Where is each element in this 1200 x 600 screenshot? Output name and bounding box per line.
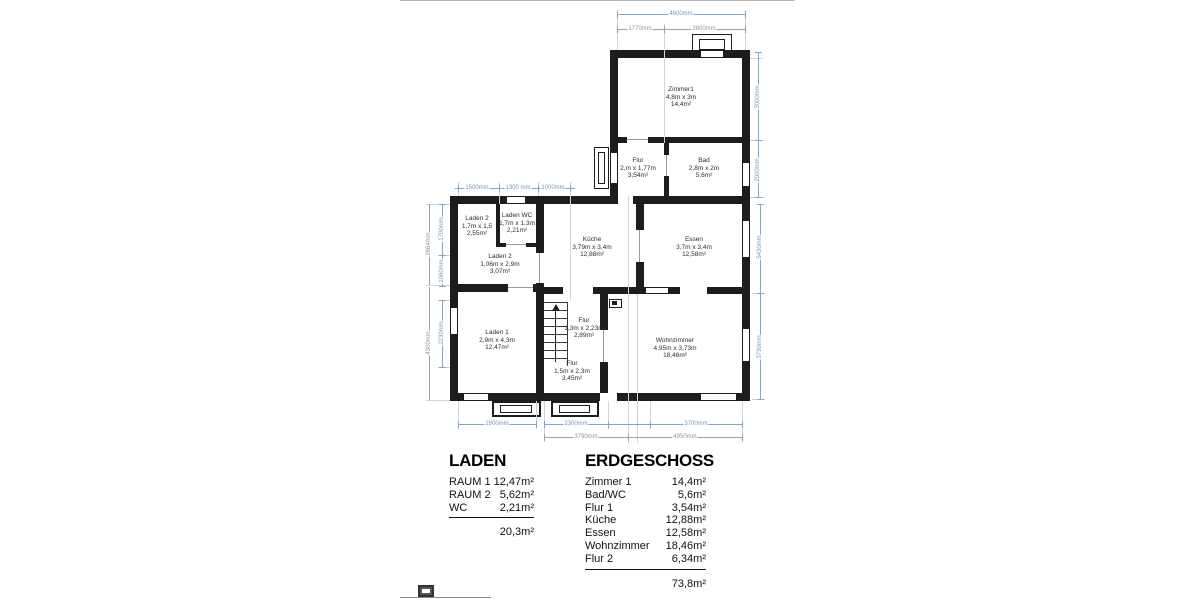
wall-segment <box>636 204 644 230</box>
row-label: WC <box>449 502 467 515</box>
room-area: 2,21m² <box>499 227 535 235</box>
laden-table: LADEN RAUM 1 12,47m² RAUM 2 5,62m² WC 2,… <box>449 451 534 538</box>
page-edge-line-bottom <box>400 597 491 598</box>
window-slot <box>742 162 750 187</box>
row-value: 12,47m² <box>494 476 534 489</box>
wall-segment <box>593 287 645 294</box>
dimension-tick <box>755 197 762 198</box>
dimension-tick <box>742 434 743 441</box>
room-label-essen: Essen 3,7m x 3,4m 12,58m² <box>676 236 712 259</box>
table-row: Essen 12,58m² <box>585 527 706 540</box>
dimension-label: 3730mm <box>757 334 763 359</box>
wall-segment <box>636 262 644 287</box>
window-slot <box>645 287 669 294</box>
row-label: Zimmer 1 <box>585 476 631 489</box>
fixture-symbol-inner <box>612 301 617 305</box>
door-opening-line <box>639 230 640 262</box>
room-name: Wohnzimmer <box>654 337 697 345</box>
row-value: 5,6m² <box>678 489 706 502</box>
row-value: 14,4m² <box>672 476 706 489</box>
erdgeschoss-total: 73,8m² <box>585 578 706 590</box>
room-name: Laden 1 <box>479 329 515 337</box>
wall-segment <box>742 204 750 220</box>
extension-line <box>637 294 638 443</box>
dimension-tick <box>757 293 764 294</box>
dimension-tick <box>617 11 618 18</box>
door-opening-line <box>539 253 540 283</box>
dimension-label: 2900mm <box>484 421 509 427</box>
wall-segment <box>617 393 700 401</box>
room-dims: 2,9m x 4,3m <box>479 336 515 344</box>
extension-line <box>628 196 629 443</box>
room-name: Laden 2 <box>480 253 519 261</box>
wall-segment <box>618 137 627 143</box>
extension-line <box>664 24 665 143</box>
room-area: 12,58m² <box>676 251 712 259</box>
dimension-tick <box>458 421 459 428</box>
wall-segment <box>489 393 600 401</box>
dimension-label: 2664mm <box>426 231 432 256</box>
table-row: RAUM 2 5,62m² <box>449 489 534 502</box>
wall-segment <box>664 176 669 196</box>
dimension-tick <box>617 26 618 33</box>
room-label-flur-top: Flur 2,m x 1,77m 3,54m² <box>620 157 656 180</box>
dimension-tick <box>755 52 762 53</box>
extension-line <box>426 400 450 401</box>
room-label-flur-mid: Flur 1,3m x 2,23m 2,89m² <box>564 317 603 340</box>
room-area: 12,47m² <box>479 344 515 352</box>
dimension-tick <box>608 421 609 428</box>
room-label-laden2-lower: Laden 2 1,06m x 2,9m 3,07m² <box>480 253 519 276</box>
door-opening-line <box>506 244 526 245</box>
floorplan-page: Zimmer1 4,8m x 3m 14,4m² Flur 2,m x 1,77… <box>0 0 1200 600</box>
dimension-tick <box>757 204 764 205</box>
room-area: 3,54m² <box>620 172 656 180</box>
dimension-tick <box>628 434 629 441</box>
table-total-rule <box>449 517 534 518</box>
wall-segment <box>496 243 506 247</box>
row-label: RAUM 1 <box>449 476 491 489</box>
erdgeschoss-table-title: ERDGESCHOSS <box>585 451 706 471</box>
room-dims: 2,m x 1,77m <box>620 164 656 172</box>
table-row: WC 2,21m² <box>449 502 534 515</box>
dimension-tick <box>439 367 446 368</box>
dimension-tick <box>650 421 651 428</box>
room-label-laden-wc: Laden WC 1,7m x 1,3m 2,21m² <box>499 212 535 235</box>
room-area: 5,6m² <box>689 172 719 180</box>
row-value: 6,34m² <box>672 553 706 566</box>
dimension-label: 4300mm <box>426 330 432 355</box>
dimension-tick <box>439 204 446 205</box>
door-opening-line <box>508 287 533 288</box>
room-name: Laden 2 <box>462 215 492 223</box>
dimension-tick <box>439 300 446 301</box>
wall-segment <box>526 243 536 247</box>
window-slot <box>742 220 750 258</box>
dimension-line <box>760 204 761 399</box>
room-label-laden1: Laden 1 2,9m x 4,3m 12,47m² <box>479 329 515 352</box>
wall-segment <box>450 393 463 401</box>
table-row: RAUM 1 12,47m² <box>449 476 534 489</box>
dimension-label: 1770mm <box>627 26 652 32</box>
row-label: Flur 1 <box>585 502 613 515</box>
dimension-tick <box>499 185 500 192</box>
wall-segment <box>526 196 612 204</box>
wall-segment <box>664 143 669 155</box>
window-slot <box>742 328 750 362</box>
dimension-tick <box>745 11 746 18</box>
row-value: 2,21m² <box>500 502 534 515</box>
wall-segment <box>707 287 750 294</box>
room-dims: 1,5m x 2,3m <box>554 367 590 375</box>
row-label: Bad/WC <box>585 489 626 502</box>
dimension-tick <box>544 434 545 441</box>
table-row: Küche 12,88m² <box>585 514 706 527</box>
window-slot <box>506 196 526 204</box>
erdgeschoss-table: ERDGESCHOSS Zimmer 1 14,4m² Bad/WC 5,6m²… <box>585 451 706 590</box>
wall-segment <box>450 335 458 401</box>
room-label-bad: Bad 2,8m x 2m 5,6m² <box>689 157 719 180</box>
room-name: Bad <box>689 157 719 165</box>
row-value: 12,88m² <box>666 514 706 527</box>
laden-table-title: LADEN <box>449 451 534 471</box>
dimension-tick <box>458 185 459 192</box>
room-dims: 3,79m x 3,4m <box>572 243 611 251</box>
dimension-label: 1000mm <box>540 185 565 191</box>
wall-segment <box>536 283 544 393</box>
extension-line <box>426 285 450 286</box>
window-slot <box>610 152 618 184</box>
door-symbol-inner <box>500 405 532 413</box>
row-value: 5,62m² <box>500 489 534 502</box>
extension-line <box>570 182 571 300</box>
room-name: Laden WC <box>499 212 535 220</box>
row-value: 18,46m² <box>666 540 706 553</box>
room-name: Zimmer1 <box>666 86 696 94</box>
table-row: Flur 2 6,34m² <box>585 553 706 566</box>
dimension-label: 1300 mm <box>504 185 531 191</box>
room-name: Essen <box>676 236 712 244</box>
dimension-tick <box>742 421 743 428</box>
dimension-tick <box>439 255 446 256</box>
room-area: 2,89m² <box>564 332 603 340</box>
room-dims: 4,95m x 3,73m <box>654 344 697 352</box>
room-label-flur-bottom: Flur 1,5m x 2,3m 3,45m² <box>554 360 590 383</box>
dimension-label: 1500mm <box>464 185 489 191</box>
dimension-label: 3790mm <box>573 434 598 440</box>
room-label-laden2-top: Laden 2 1,7m x 1,5 2,55m² <box>462 215 492 238</box>
window-slot <box>700 50 724 58</box>
room-dims: 1,3m x 2,23m <box>564 324 603 332</box>
room-dims: 2,8m x 2m <box>689 164 719 172</box>
dimension-label: 3700mm <box>683 421 708 427</box>
door-opening-line <box>666 155 667 176</box>
laden-total: 20,3m² <box>449 526 534 538</box>
wall-segment <box>450 196 506 204</box>
wall-segment <box>648 137 742 143</box>
room-area: 12,88m² <box>572 251 611 259</box>
dimension-label: 1060mm <box>439 258 445 283</box>
dimension-label: 2800mm <box>691 26 716 32</box>
row-label: Flur 2 <box>585 553 613 566</box>
door-symbol-inner <box>559 405 590 413</box>
room-area: 18,46m² <box>654 352 697 360</box>
room-label-wohnzimmer: Wohnzimmer 4,95m x 3,73m 18,46m² <box>654 337 697 360</box>
window-symbol-inner <box>598 152 605 184</box>
table-row: Bad/WC 5,6m² <box>585 489 706 502</box>
room-label-zimmer1: Zimmer1 4,8m x 3m 14,4m² <box>666 86 696 109</box>
dimension-label: 4950mm <box>672 434 697 440</box>
stairs-direction-arrow <box>555 310 556 362</box>
dimension-label: 5430mm <box>757 234 763 259</box>
dimension-tick <box>745 26 746 33</box>
room-name: Flur <box>620 157 656 165</box>
table-row: Wohnzimmer 18,46m² <box>585 540 706 553</box>
room-area: 3,45m² <box>554 375 590 383</box>
dimension-label: 2230mm <box>439 320 445 345</box>
dimension-tick <box>439 286 446 287</box>
dimension-label: 3000mm <box>755 84 761 109</box>
room-dims: 1,7m x 1,3m <box>499 219 535 227</box>
wall-segment <box>610 50 750 58</box>
window-slot <box>450 307 458 335</box>
dimension-tick <box>755 140 762 141</box>
room-name: Flur <box>554 360 590 368</box>
table-total-rule <box>585 569 706 570</box>
dimension-label: 2300mm <box>563 421 588 427</box>
room-name: Flur <box>564 317 603 325</box>
extension-line <box>750 58 763 59</box>
wall-segment <box>600 362 608 393</box>
dimension-label: 4600mm <box>668 11 693 17</box>
room-area: 3,07m² <box>480 268 519 276</box>
room-dims: 1,7m x 1,5 <box>462 222 492 230</box>
wall-segment <box>536 204 544 253</box>
room-dims: 1,06m x 2,9m <box>480 260 519 268</box>
room-name: Küche <box>572 236 611 244</box>
dimension-tick <box>570 185 571 192</box>
next-floor-window-symbol-slot <box>422 589 430 593</box>
window-slot <box>700 393 737 401</box>
wall-segment <box>737 393 750 401</box>
page-edge-line-top <box>400 0 795 1</box>
door-opening-line <box>627 139 648 140</box>
wall-segment <box>536 287 563 294</box>
wall-segment <box>669 287 680 294</box>
room-dims: 3,7m x 3,4m <box>676 243 712 251</box>
dimension-tick <box>536 421 537 428</box>
dimension-tick <box>544 421 545 428</box>
wall-segment <box>633 196 750 204</box>
wall-segment <box>450 284 508 292</box>
window-slot <box>463 393 489 401</box>
room-label-kueche: Küche 3,79m x 3,4m 12,88m² <box>572 236 611 259</box>
room-dims: 4,8m x 3m <box>666 93 696 101</box>
row-label: Küche <box>585 514 616 527</box>
dimension-tick <box>757 399 764 400</box>
window-symbol-inner <box>699 39 725 50</box>
row-label: RAUM 2 <box>449 489 491 502</box>
row-value: 12,58m² <box>666 527 706 540</box>
stairs-arrow-head-icon <box>552 304 560 311</box>
dimension-tick <box>538 185 539 192</box>
row-label: Essen <box>585 527 616 540</box>
room-area: 14,4m² <box>666 101 696 109</box>
dimension-label: 1700mm <box>439 216 445 241</box>
table-row: Zimmer 1 14,4m² <box>585 476 706 489</box>
table-row: Flur 1 3,54m² <box>585 502 706 515</box>
row-value: 3,54m² <box>672 502 706 515</box>
row-label: Wohnzimmer <box>585 540 650 553</box>
dimension-label: 2000mm <box>755 157 761 182</box>
dimension-tick <box>664 26 665 33</box>
room-area: 2,55m² <box>462 230 492 238</box>
